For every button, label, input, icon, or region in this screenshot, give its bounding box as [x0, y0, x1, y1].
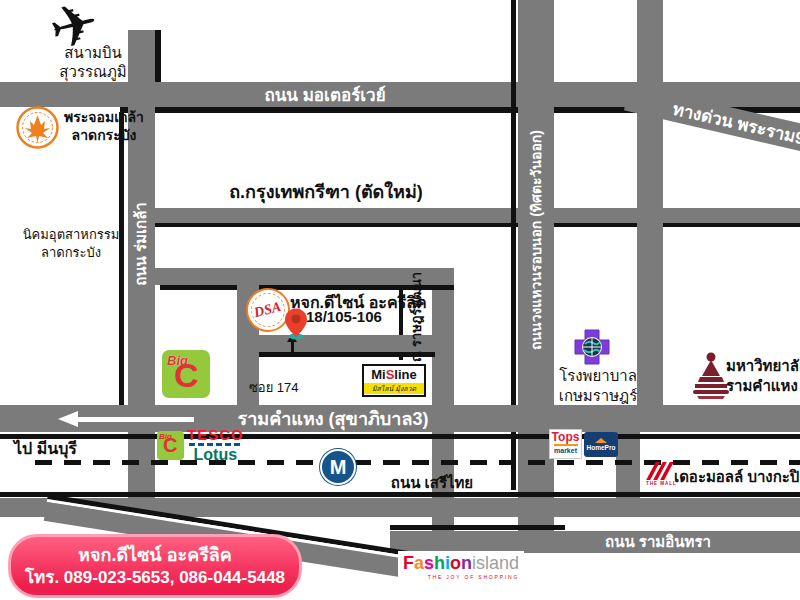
ram-inthra-label: ถนน รามอินทรา — [605, 530, 711, 554]
metro-station-icon: M — [320, 449, 356, 485]
krungthep-kreetha-label: ถ.กรุงเทพกรีฑา (ตัดใหม่) — [229, 177, 423, 206]
soi-174-label: ซอย 174 — [249, 377, 299, 398]
hospital-icon — [572, 327, 612, 367]
homepro-logo: HomePro — [584, 432, 618, 457]
romklao-label: ถนน ร่มเกล้า — [129, 202, 153, 286]
ramkhamhaeng-label: รามคำแหง (สุขาภิบาล3) — [238, 404, 429, 433]
industrial-estate-label: นิคมอุตสาหกรรม ลาดกระบัง — [23, 226, 120, 261]
road-ramkhamhaeng-shadow — [0, 434, 800, 439]
dsa-logo: DSA — [246, 288, 290, 332]
tops-market-logo: Tops market — [549, 429, 582, 459]
road-romklao-shadow-right — [155, 30, 161, 82]
university-label: มหาวิทยาลัย รามคำแหง — [726, 356, 800, 395]
road-romklao-shadow-left — [119, 112, 124, 405]
hospital-label: โรงพยาบาล เกษมราษฎร์ — [559, 366, 637, 405]
seri-thai-label: ถนน เสรีไทย — [391, 471, 473, 495]
kmitl-emblem-icon — [15, 105, 60, 150]
motorway-label: ถนน มอเตอร์เวย์ — [264, 81, 385, 108]
location-pin-icon — [285, 308, 307, 340]
road-vertical-right-upper — [637, 0, 663, 405]
tesco-lotus-logo: TESCO Lotus — [187, 427, 244, 462]
ring-road-label: ถนนวงแหวนรอบนอก (ทิศตะวันออก) — [525, 130, 547, 350]
contact-box: หจก.ดีไซน์ อะครีลิค โทร. 089-023-5653, 0… — [8, 534, 302, 598]
bigc-small-logo: Big C — [157, 431, 184, 460]
company-address-label: 18/105-106 — [306, 308, 382, 325]
fashion-island-logo: Fashionisland THE JOY OF SHOPPING — [398, 551, 524, 583]
contact-company-name: หจก.ดีไซน์ อะครีลิค — [78, 544, 232, 567]
themall-stripes-icon — [646, 462, 677, 481]
road-ram-inthra-edge — [390, 525, 565, 530]
airport-label: สนามบิน สุวรรณภูมิ — [59, 44, 126, 82]
to-minburi-label: ไป มีนบุรี — [14, 436, 77, 461]
kmitl-label: พระจอมเกล้า ลาดกระบัง — [64, 108, 144, 144]
road-soi-inner — [237, 335, 432, 352]
rat-phatthana-label: ถ. ราษฎร์พัฒนา — [406, 272, 427, 362]
themall-label: เดอะมอลล์ บางกะปิ — [674, 465, 799, 489]
dsa-logo-text: DSA — [253, 299, 283, 321]
university-emblem-icon — [692, 350, 730, 400]
themall-logo: THE MALL — [646, 462, 677, 487]
road-krungthep-kreetha — [128, 208, 800, 223]
contact-phone: โทร. 089-023-5653, 086-044-5448 — [25, 567, 285, 588]
misline-logo: MiSline มิสไลน์ มุ้งลวด — [362, 364, 426, 397]
bigc-logo: Big C — [162, 350, 210, 398]
road-krungthep-kreetha-shadow — [128, 223, 800, 227]
road-vertical-right-lower — [616, 432, 640, 498]
location-map: ทางด่วน พระราม9 ถนน มอเตอร์เวย์ ถ.กรุงเท… — [0, 0, 800, 600]
road-ram-inthra — [390, 531, 800, 553]
